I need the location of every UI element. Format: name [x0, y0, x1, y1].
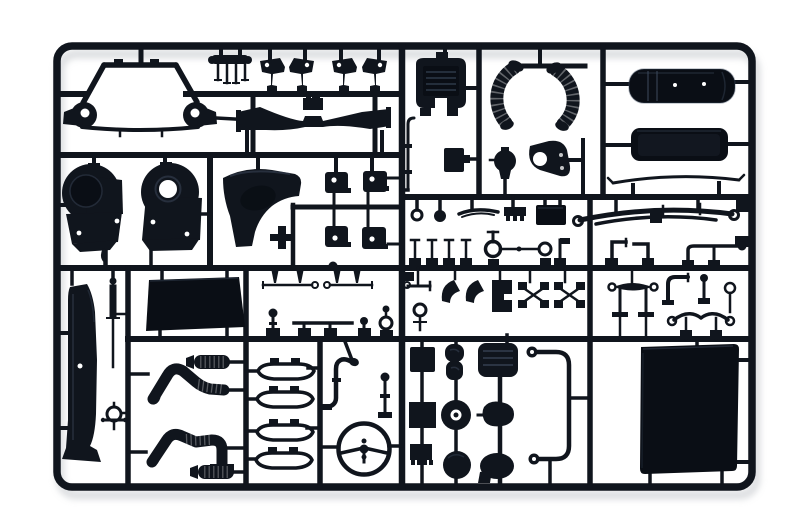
side-deflector	[62, 284, 101, 462]
roof-panel	[640, 344, 739, 474]
air-intake-box	[416, 52, 466, 116]
visor-blade	[608, 175, 744, 183]
engine-bracket	[529, 141, 570, 177]
seat-back	[445, 344, 464, 380]
hardware-row-mid	[263, 268, 393, 339]
floor-panel	[146, 277, 245, 331]
air-horn	[478, 402, 514, 427]
tilt-tube	[527, 347, 570, 465]
leaf-spring	[574, 204, 739, 226]
cab-subframe	[63, 59, 217, 136]
sprue-photo	[0, 0, 800, 530]
cross-bracket	[270, 226, 294, 249]
muffler-upper	[186, 355, 230, 369]
pulley-wheel	[441, 400, 471, 430]
seat-bracket	[208, 55, 252, 83]
storage-box	[410, 347, 435, 372]
gearbox-housing-right	[141, 162, 202, 251]
fuel-tank-aux	[631, 128, 728, 161]
mudflap-brackets	[260, 58, 387, 94]
photo-canvas	[0, 0, 800, 530]
steering-wheel	[339, 424, 390, 475]
hardware-row-c	[404, 268, 735, 339]
hardware-row-b	[409, 232, 747, 269]
hardware-row-a	[412, 205, 566, 225]
fuel-tank-main	[629, 69, 735, 103]
stack-elbow	[319, 357, 360, 410]
intake-hose-left	[497, 58, 526, 132]
brake-drum	[443, 451, 471, 479]
muffler-lower	[190, 465, 234, 479]
mount-block	[409, 402, 436, 428]
exhaust-pipe-upper	[147, 369, 224, 407]
shift-lever	[378, 373, 392, 419]
front-axle-beam	[236, 92, 391, 132]
intake-hose-right	[545, 60, 574, 133]
horn-button	[490, 147, 516, 179]
thin-pipe	[404, 118, 414, 188]
step-boards	[256, 358, 314, 468]
horn-bell	[478, 453, 514, 483]
drag-link-ring	[101, 403, 127, 429]
gearbox-housing-left	[62, 163, 123, 268]
antenna-rod	[107, 278, 119, 368]
intake-grille	[478, 343, 518, 377]
relay-plate	[444, 148, 470, 172]
